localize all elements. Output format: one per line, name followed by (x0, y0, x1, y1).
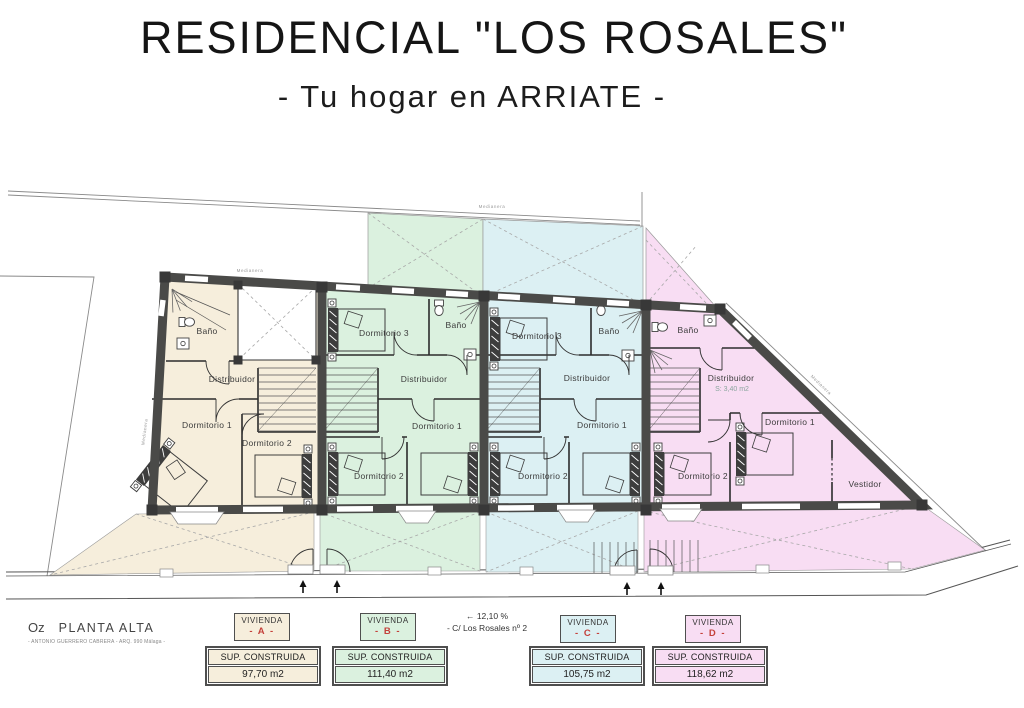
medianera-label: Medianera (237, 268, 264, 273)
threshold (888, 562, 901, 570)
wall-post (312, 356, 321, 365)
sheet-code: Oz (28, 620, 45, 635)
page-title: RESIDENCIAL "LOS ROSALES" (0, 12, 1006, 64)
boundary-line (8, 191, 640, 221)
sheet-title: PLANTA ALTA (59, 621, 155, 635)
sup-label: SUP. CONSTRUIDA (655, 649, 765, 665)
sup-label: SUP. CONSTRUIDA (532, 649, 642, 665)
street-slope: ← 12,10 % (433, 610, 541, 622)
wall-post (317, 505, 328, 516)
room-label-bano-a: Baño (196, 326, 217, 336)
sup-label: SUP. CONSTRUIDA (208, 649, 318, 665)
wall-post (317, 282, 328, 293)
window-sill (170, 512, 224, 524)
street-note: ← 12,10 % - C/ Los Rosales nº 2 (433, 610, 541, 634)
vivienda-label: VIVIENDA (561, 618, 615, 627)
room-label-dormitorio2-d: Dormitorio 2 (678, 471, 728, 481)
toilet-icon (652, 323, 668, 332)
vivienda-label: VIVIENDA (686, 618, 740, 627)
building (130, 272, 927, 525)
vivienda-label: VIVIENDA (361, 616, 415, 625)
room-label-dormitorio2-c: Dormitorio 2 (518, 471, 568, 481)
wall-post (479, 291, 490, 302)
window-opening (161, 300, 163, 316)
sink-icon (704, 315, 716, 326)
sup-value-d: 118,62 m2 (655, 666, 765, 683)
threshold (320, 565, 345, 574)
vivienda-a-box: VIVIENDA - A - (234, 613, 290, 641)
room-label-dormitorio1-b: Dormitorio 1 (412, 421, 462, 431)
entrance-arrow-icon (334, 580, 341, 593)
room-label-vestidor-d: Vestidor (848, 479, 881, 489)
room-label-dormitorio1-a: Dormitorio 1 (182, 420, 232, 430)
room-label-distribuidor-sup-d: S: 3,40 m2 (715, 386, 749, 393)
wall-post (641, 505, 652, 516)
room-label-distribuidor-d: Distribuidor (708, 373, 755, 383)
wall-post (917, 500, 928, 511)
sup-construida-a-box: SUP. CONSTRUIDA 97,70 m2 (205, 646, 321, 686)
sup-value-c: 105,75 m2 (532, 666, 642, 683)
entrance-arrow-icon (624, 582, 631, 595)
room-label-dormitorio3-c: Dormitorio 3 (512, 331, 562, 341)
threshold (756, 565, 769, 573)
sup-construida-c-box: SUP. CONSTRUIDA 105,75 m2 (529, 646, 645, 686)
wall-post (479, 505, 490, 516)
sup-value-a: 97,70 m2 (208, 666, 318, 683)
room-label-distribuidor-b: Distribuidor (401, 374, 448, 384)
toilet-icon (435, 300, 444, 316)
room-label-distribuidor-c: Distribuidor (564, 373, 611, 383)
sink-icon (622, 350, 634, 361)
page-subtitle: - Tu hogar en ARRIATE - (0, 79, 984, 115)
sup-construida-b-box: SUP. CONSTRUIDA 111,40 m2 (332, 646, 448, 686)
medianera-label: Medianera (810, 374, 833, 396)
threshold (160, 569, 173, 577)
toilet-icon (179, 318, 195, 327)
room-label-bano-c: Baño (598, 326, 619, 336)
street-name: - C/ Los Rosales nº 2 (433, 622, 541, 634)
room-label-dormitorio2-a: Dormitorio 2 (242, 438, 292, 448)
room-label-dormitorio1-c: Dormitorio 1 (577, 420, 627, 430)
entrance-arrow-icon (658, 582, 665, 595)
room-label-distribuidor-a: Distribuidor (209, 374, 256, 384)
vivienda-c-box: VIVIENDA - C - (560, 615, 616, 643)
wall-post (147, 505, 158, 516)
room-label-dormitorio2-b: Dormitorio 2 (354, 471, 404, 481)
vivienda-c-letter: - C - (561, 628, 615, 639)
boundary-line (0, 276, 94, 576)
room-label-bano-d: Baño (677, 325, 698, 335)
vivienda-d-box: VIVIENDA - D - (685, 615, 741, 643)
boundary-line (8, 195, 640, 225)
entrance-arrow-icon (300, 580, 307, 593)
threshold (428, 567, 441, 575)
room-label-dormitorio3-b: Dormitorio 3 (359, 328, 409, 338)
plan-sheet: RESIDENCIAL "LOS ROSALES" - Tu hogar en … (0, 0, 1024, 708)
wall-post (715, 304, 726, 315)
threshold (288, 565, 313, 574)
vivienda-b-letter: - B - (361, 626, 415, 637)
vivienda-a-letter: - A - (235, 626, 289, 637)
room-label-bano-b: Baño (445, 320, 466, 330)
room-label-dormitorio1-d: Dormitorio 1 (765, 417, 815, 427)
architect-credit: - ANTONIO GUERRERO CABRERA - ARQ. 990 Má… (28, 639, 208, 645)
wall-post (641, 300, 652, 311)
threshold (648, 566, 673, 575)
sheet-title-block: OzPLANTA ALTA - ANTONIO GUERRERO CABRERA… (28, 620, 208, 645)
sup-value-b: 111,40 m2 (335, 666, 445, 683)
sup-construida-d-box: SUP. CONSTRUIDA 118,62 m2 (652, 646, 768, 686)
wall-post (234, 356, 243, 365)
sheet-title-line: OzPLANTA ALTA (28, 620, 208, 635)
patio-d (646, 228, 717, 308)
wall-post (234, 281, 243, 290)
sink-icon (464, 349, 476, 360)
medianera-label: Medianera (140, 418, 148, 445)
wall-post (160, 272, 171, 283)
floor-plan: Baño Distribuidor Dormitorio 1 Dormitori… (0, 170, 1024, 610)
sink-icon (177, 338, 189, 349)
vivienda-label: VIVIENDA (235, 616, 289, 625)
medianera-label: Medianera (479, 204, 506, 209)
vivienda-b-box: VIVIENDA - B - (360, 613, 416, 641)
threshold (610, 566, 635, 575)
threshold (520, 567, 533, 575)
vivienda-d-letter: - D - (686, 628, 740, 639)
sup-label: SUP. CONSTRUIDA (335, 649, 445, 665)
